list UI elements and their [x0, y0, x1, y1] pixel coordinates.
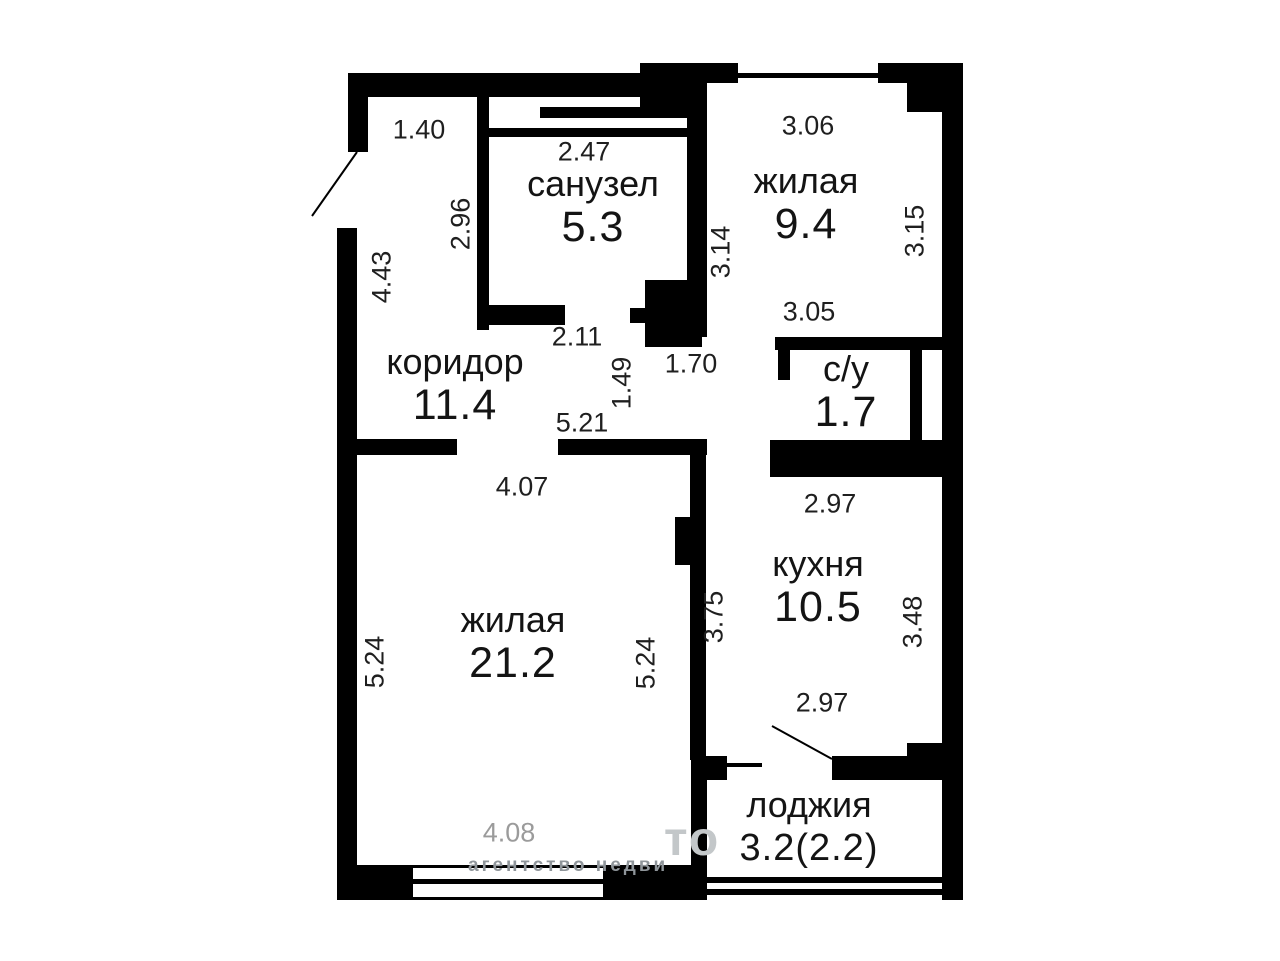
door-swing-lines [0, 0, 1280, 961]
entrance-door-swing-line [312, 152, 357, 216]
room-label: жилая21.2 [461, 600, 566, 686]
dimension-label: 4.43 [367, 251, 398, 304]
room-name: кухня [772, 544, 864, 584]
room-label: лоджия3.2(2.2) [740, 785, 879, 871]
dimension-label: 3.48 [898, 596, 929, 649]
dimension-label: 3.05 [783, 297, 836, 328]
watermark-logo-fragment: то [664, 812, 720, 867]
dimension-label: 4.07 [496, 472, 549, 503]
dimension-label: 4.08 [483, 818, 536, 849]
dimension-label: 3.15 [900, 205, 931, 258]
room-area: 10.5 [772, 584, 864, 630]
dimension-label: 1.40 [393, 115, 446, 146]
floor-plan: санузел5.3жилая9.4коридор11.4с/у1.7кухня… [0, 0, 1280, 961]
room-area: 11.4 [386, 382, 523, 428]
dimension-label: 2.97 [796, 688, 849, 719]
dimension-label: 2.47 [558, 137, 611, 168]
dimension-label: 3.14 [706, 226, 737, 279]
room-name: санузел [527, 164, 659, 204]
room-name: жилая [754, 161, 859, 201]
dimension-label: 1.70 [665, 349, 718, 380]
dimension-label: 5.24 [631, 637, 662, 690]
dimension-label: 2.11 [552, 322, 603, 353]
dimension-label: 1.49 [607, 357, 638, 410]
room-label: коридор11.4 [386, 342, 523, 428]
room-area: 9.4 [754, 201, 859, 247]
room-area: 1.7 [815, 389, 878, 435]
watermark-agency-text: агентство недви [468, 855, 668, 877]
room-name: лоджия [740, 785, 879, 825]
room-label: кухня10.5 [772, 544, 864, 630]
dimension-label: 3.75 [699, 591, 730, 644]
room-label: санузел5.3 [527, 164, 659, 250]
room-label: жилая9.4 [754, 161, 859, 247]
room-name: жилая [461, 600, 566, 640]
dimension-label: 5.21 [556, 408, 609, 439]
dimension-label: 2.96 [446, 198, 477, 251]
dimension-label: 5.24 [360, 636, 391, 689]
room-area: 21.2 [461, 640, 566, 686]
room-area: 3.2(2.2) [740, 825, 879, 871]
dimension-label: 3.06 [782, 111, 835, 142]
dimension-label: 2.97 [804, 489, 857, 520]
room-name: с/у [815, 349, 878, 389]
room-name: коридор [386, 342, 523, 382]
room-area: 5.3 [527, 204, 659, 250]
room-label: с/у1.7 [815, 349, 878, 435]
balcony-door-swing-line [772, 726, 832, 759]
